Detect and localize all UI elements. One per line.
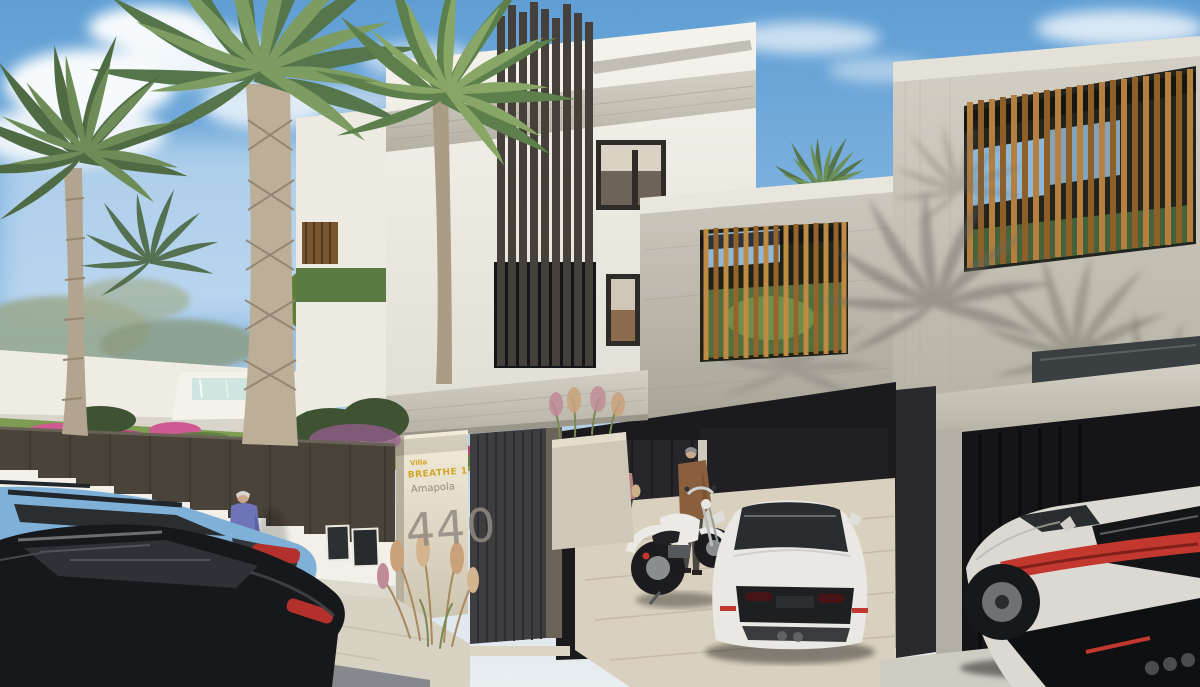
sign-number: 440 [404, 498, 498, 558]
carport-divider-pillar [896, 386, 936, 658]
scene-canvas: Villa BREATHE 1 Amapola 440 [0, 0, 1200, 687]
sign-line-villa: Villa [410, 458, 428, 467]
wood-slat-screen [700, 222, 848, 362]
utility-panels [326, 526, 378, 567]
divider-pillar-lit-face [936, 428, 962, 662]
white-porsche-coupe [705, 500, 875, 664]
villa-hedge [296, 268, 396, 302]
villa-wood-window [302, 222, 338, 264]
rendered-scene: Villa BREATHE 1 Amapola 440 [0, 0, 1200, 687]
